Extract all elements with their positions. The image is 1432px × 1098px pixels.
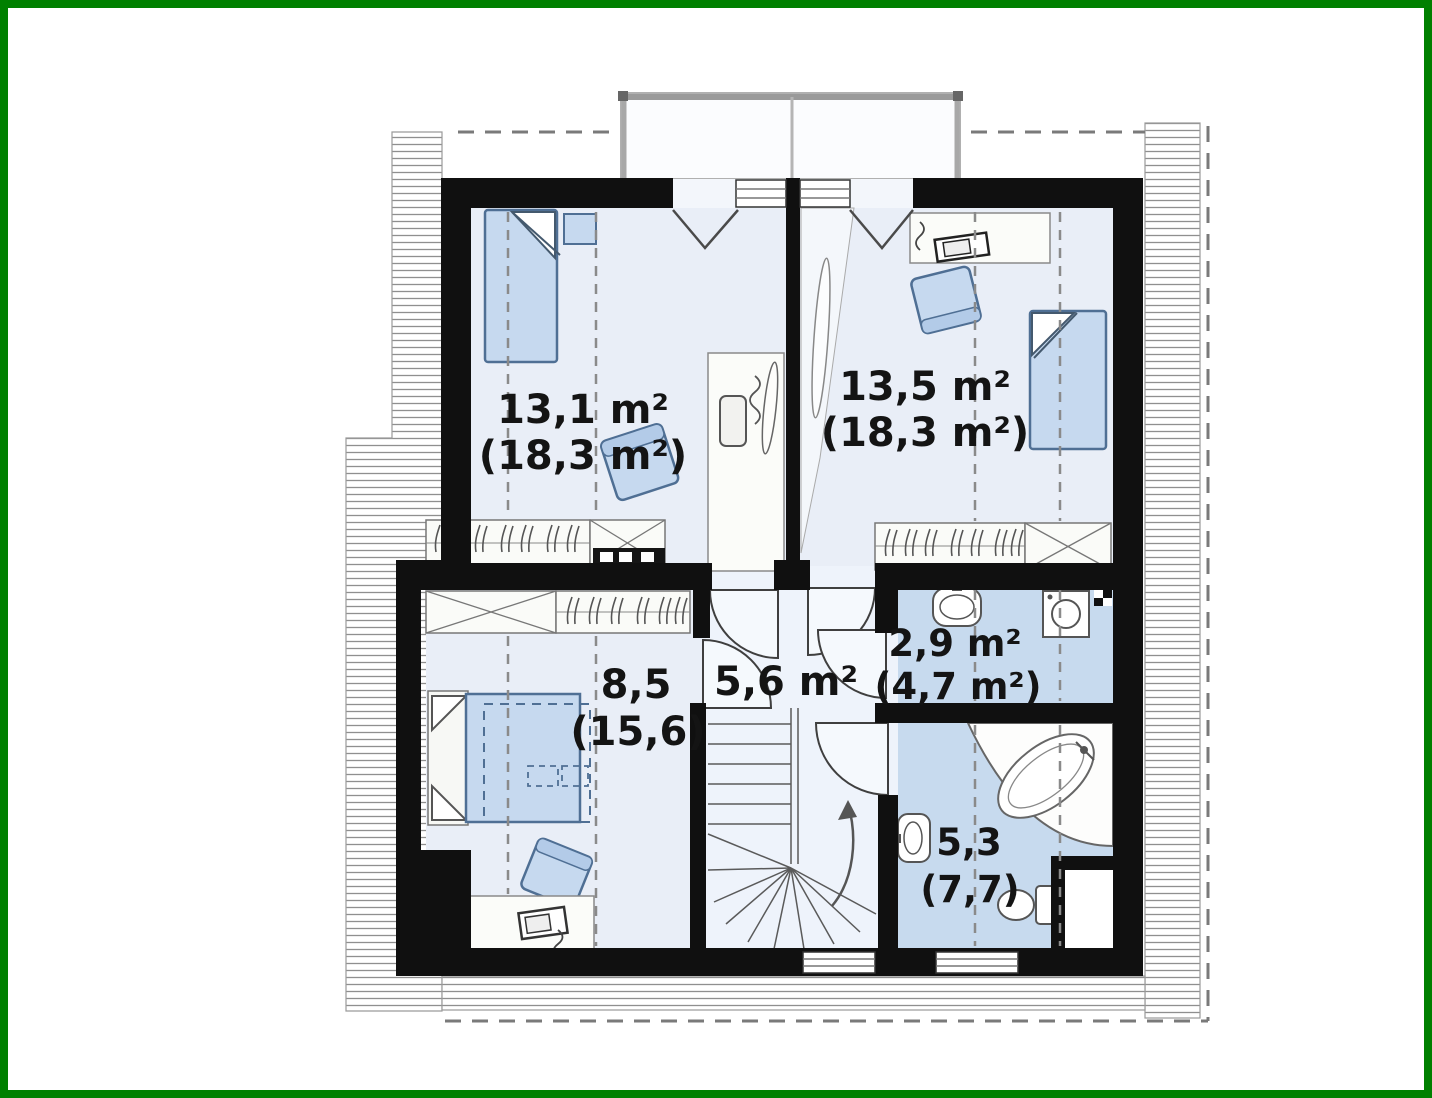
wall-niche: [1065, 870, 1113, 948]
hall-area-label: 5,6 m²: [714, 659, 858, 705]
wardrobe-hanging-icon: [875, 523, 1025, 570]
bathroom-small-gross-label: (4,7 m²): [874, 665, 1041, 708]
wardrobe-hanging-icon: [556, 591, 690, 633]
bedroom-top-left-area-label: 13,1 m²: [497, 387, 669, 433]
bedroom-top-right-area-label: 13,5 m²: [839, 364, 1011, 410]
bedroom-top-right-gross-label: (18,3 m²): [821, 410, 1029, 456]
bathroom-main-area-label: 5,3: [936, 821, 1002, 864]
washing-machine-icon: [1043, 591, 1089, 637]
window-icon: [736, 180, 786, 207]
chair-icon: [720, 396, 746, 446]
floor-plan-frame: 13,1 m² (18,3 m²) 13,5 m² (18,3 m²) 8,5 …: [0, 0, 1432, 1098]
window-icon: [803, 952, 875, 973]
window-icon: [800, 180, 850, 207]
floor-plan-drawing: 13,1 m² (18,3 m²) 13,5 m² (18,3 m²) 8,5 …: [8, 8, 1432, 1098]
bedroom-top-left-gross-label: (18,3 m²): [479, 433, 687, 479]
bathroom-small-area-label: 2,9 m²: [888, 622, 1021, 665]
sink-icon: [894, 814, 930, 862]
wardrobe-cross-icon: [1025, 523, 1111, 570]
laptop-icon: [518, 907, 567, 939]
bathroom-main-gross-label: (7,7): [920, 868, 1019, 911]
nightstand-icon: [564, 214, 596, 244]
dormer-icon: [618, 91, 963, 179]
bedroom-bottom-left-gross-label: (15,6): [570, 709, 705, 755]
wardrobe-cross-icon: [426, 591, 556, 633]
bedroom-bottom-left-area-label: 8,5: [601, 662, 672, 708]
window-icon: [936, 952, 1018, 973]
radiator-icon: [1094, 590, 1112, 606]
